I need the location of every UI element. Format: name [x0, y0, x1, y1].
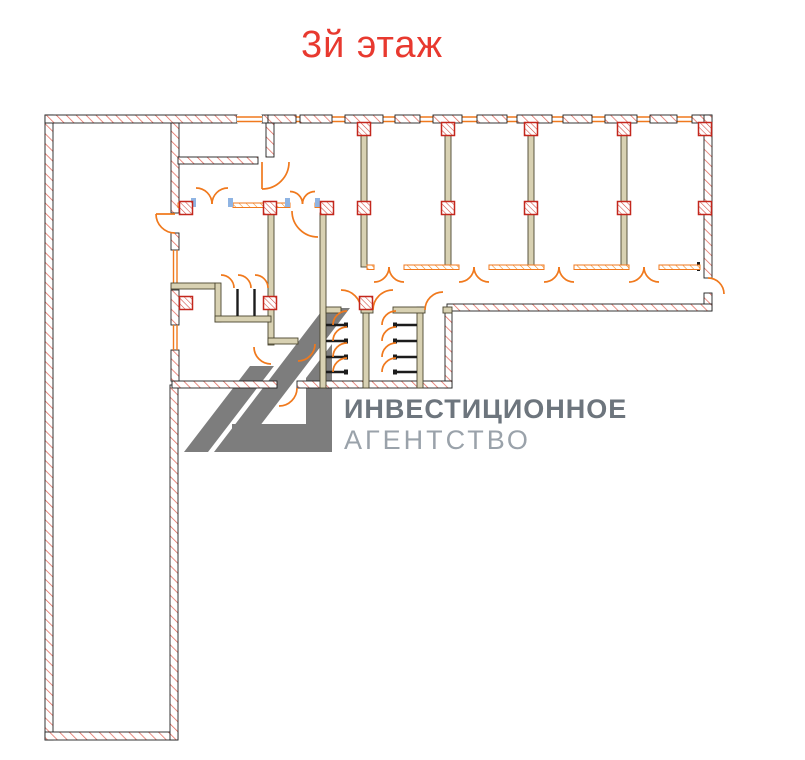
door-arcs — [156, 162, 724, 406]
logo-text-line1: ИНВЕСТИЦИОННОЕ — [344, 396, 627, 423]
floor-plan-page: 3й этаж ИНВЕСТИЦИОННОЕ АГЕНТСТВО — [0, 0, 805, 760]
floor-plan-drawing — [0, 0, 805, 760]
logo-text-line2: АГЕНТСТВО — [344, 427, 531, 454]
